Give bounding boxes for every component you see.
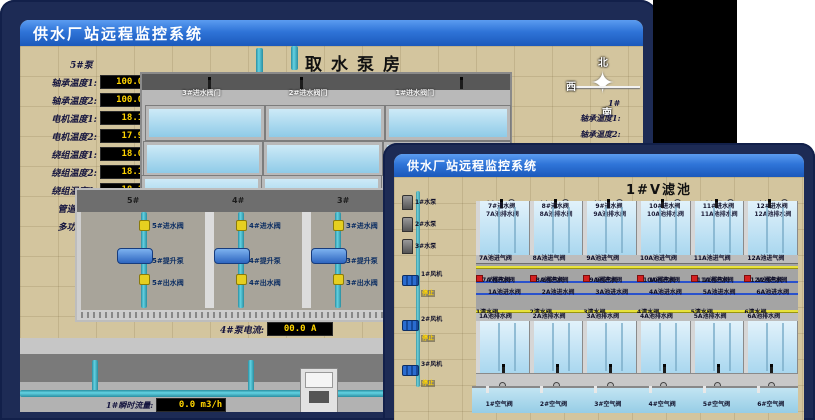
bottom-channel: 1#空气阀 2#空气阀 3#空气阀 4#空气阀 5#空气阀 6#空气阀 [472, 386, 798, 413]
cell-air-in-label: 10A池进气阀 [637, 255, 691, 263]
readout-label: 电机温度2: [51, 130, 97, 143]
top-airin-row: 7A池进气阀8A池进气阀9A池进气阀10A池进气阀11A池进气阀12A池进气阀 [476, 255, 798, 263]
back-window-titlebar[interactable]: 供水厂站远程监控系统 [20, 20, 643, 46]
cell-pool-inlet-label[interactable]: 6A池进水阀 [744, 289, 798, 299]
cell-lane-divider [659, 207, 661, 253]
bay-inlet-valve-label: 4#进水阀 [249, 221, 281, 231]
front-window: 供水厂站远程监控系统 1#V滤池 1#水泵 2#水泵 3#水泵 [394, 154, 804, 420]
cell-air-in-label: 11A池进气阀 [691, 255, 745, 263]
cell-pool-inlet-label[interactable]: 1A池进水阀 [476, 289, 530, 299]
cell-pool-inlet-label[interactable]: 12A池进水阀 [744, 277, 798, 287]
blower-status: 停止 [421, 335, 435, 342]
cell-inlet-label: 8#进水阀 [542, 203, 569, 210]
inlet-valve-icon[interactable] [333, 220, 344, 231]
readout-label: 绕组温度2: [51, 166, 97, 179]
cell-lane-divider [659, 323, 661, 371]
cell-lane-divider [729, 207, 731, 253]
readout-row: 绕组温度2: 18.1°C [26, 165, 158, 179]
left-equipment: 1#水泵 2#水泵 3#水泵 1#风机 停止 [402, 195, 474, 396]
walkway: 7排气阀 8排气阀 9排气阀 10排气阀 11排气阀 12排气阀 [476, 263, 798, 315]
ammeter-left: 4#泵电流: 00.0 A [220, 322, 333, 336]
cell-lane-divider [514, 323, 516, 371]
compass-north: 北 [598, 54, 608, 69]
filter-cell-top[interactable]: 12#进水阀 12A池排水阀 [744, 201, 798, 255]
front-window-title: 供水厂站远程监控系统 [407, 157, 537, 174]
cell-lane-divider [552, 207, 554, 253]
cell-pool-inlet-label[interactable]: 10A池进水阀 [637, 277, 691, 287]
cell-lane-divider [782, 323, 784, 371]
cell-lane-divider [766, 323, 768, 371]
gate-valve-label: 3#进水阀门 [182, 88, 289, 98]
channel-air-valve[interactable]: 3#空气阀 [581, 388, 635, 413]
blower[interactable]: 3#风机 停止 [402, 351, 474, 389]
inlet-valve-icon[interactable] [139, 220, 150, 231]
channel-air-label: 4#空气阀 [649, 401, 676, 408]
cell-exhaust[interactable]: 9排气阀 [583, 267, 637, 277]
cell-pool-inlet-label[interactable]: 2A池进水阀 [530, 289, 584, 299]
outlet-valve-icon[interactable] [333, 274, 344, 285]
bay-number: 4# [232, 196, 337, 205]
cell-air-in-label: 12A池进气阀 [744, 255, 798, 263]
channel-air-label: 1#空气阀 [486, 401, 513, 408]
ammeter-left-value[interactable]: 00.0 A [267, 322, 333, 336]
cell-drain-label: 12A池排水阀 [754, 211, 791, 218]
cell-inlet-valve-icon [609, 364, 612, 373]
cell-pool-inlet-label[interactable]: 5A池进水阀 [691, 289, 745, 299]
lift-pump-icon[interactable] [214, 248, 250, 264]
cell-inlet-valve-icon [663, 364, 666, 373]
cell-pool-inlet-label[interactable]: 3A池进水阀 [583, 289, 637, 299]
bottom-drain-row: 1A池排水阀2A池排水阀3A池排水阀4A池排水阀5A池排水阀6A池排水阀 [476, 313, 798, 321]
outlet-valve-icon[interactable] [139, 274, 150, 285]
cell-lane-divider [514, 207, 516, 253]
cell-lane-divider [568, 207, 570, 253]
back-window-title: 供水厂站远程监控系统 [33, 23, 203, 44]
partial-readout-label: 轴承温度2: [580, 129, 643, 140]
tank-cell [146, 106, 264, 140]
walkway-top-labels: 7排气阀 8排气阀 9排气阀 10排气阀 11排气阀 12排气阀 [476, 267, 798, 277]
filter-scene: 1#V滤池 1#水泵 2#水泵 3#水泵 [394, 177, 804, 420]
channel-air-valve[interactable]: 5#空气阀 [689, 388, 743, 413]
pump5-label: 5#泵 [70, 58, 158, 71]
tank-cell [386, 106, 510, 140]
channel-air-label: 5#空气阀 [703, 401, 730, 408]
bay-pump-label: 4#提升泵 [249, 256, 281, 266]
blower-status: 停止 [421, 290, 435, 297]
cell-lane-divider [498, 323, 500, 371]
readout-row: 电机温度2: 17.9°C [26, 129, 158, 143]
filter-cell-top[interactable]: 7#进水阀 7A池排水阀 [476, 201, 530, 255]
compass-bar [568, 86, 640, 88]
bay-pump-label: 3#提升泵 [346, 256, 378, 266]
bay-pump-label: 5#提升泵 [152, 256, 184, 266]
cell-exhaust[interactable]: 11排气阀 [691, 267, 745, 277]
ammeter-left-label: 4#泵电流: [220, 323, 264, 336]
pump-icon [402, 217, 413, 232]
channel-air-valve[interactable]: 1#空气阀 [472, 388, 526, 413]
cell-pool-inlet-label[interactable]: 4A池进水阀 [637, 289, 691, 299]
cell-drain-label: 5A池排水阀 [691, 313, 745, 321]
cell-lane-divider [605, 323, 607, 371]
pump-bay: 4#进水阀 4#提升泵 4#出水阀 [214, 212, 311, 308]
gallery-branch-pipe [92, 360, 98, 392]
cell-lane-divider [568, 323, 570, 371]
bay-outlet-valve-label: 3#出水阀 [346, 278, 378, 288]
cell-inlet-label: 9#进水阀 [595, 203, 622, 210]
readout-label: 绕组温度1: [51, 148, 97, 161]
pump-icon [402, 239, 413, 254]
blower-label: 1#风机 [421, 271, 442, 278]
gate-valve-label: 1#进水阀门 [395, 88, 502, 98]
blower[interactable]: 2#风机 停止 [402, 306, 474, 344]
readout-label: 轴承温度2: [51, 94, 97, 107]
cell-inlet-valve-icon [717, 364, 720, 373]
walkway-top-inlet-labels: 7A池进水阀8A池进水阀9A池进水阀10A池进水阀11A池进水阀12A池进水阀 [476, 277, 798, 287]
cell-lane-divider [713, 323, 715, 371]
cell-exhaust[interactable]: 10排气阀 [637, 267, 691, 277]
pump1-readout-partial: 1# 轴承温度1:轴承温度2: [580, 98, 643, 140]
gallery-branch-pipe [248, 360, 254, 392]
filter-cell-bottom[interactable] [691, 321, 745, 373]
bay-inlet-valve-label: 5#进水阀 [152, 221, 184, 231]
cell-pool-inlet-label[interactable]: 9A池进水阀 [583, 277, 637, 287]
filter-cell-top[interactable]: 8#进水阀 8A池排水阀 [530, 201, 584, 255]
bay-outlet-valve-label: 4#出水阀 [249, 278, 281, 288]
readout-label: 电机温度1: [51, 112, 97, 125]
cell-lane-divider [621, 323, 623, 371]
cell-pool-inlet-label[interactable]: 7A池进水阀 [476, 277, 530, 287]
blower-icon [402, 275, 419, 286]
riser-pipe [291, 46, 298, 70]
filter-cell-top[interactable]: 11#进水阀 11A池排水阀 [691, 201, 745, 255]
tank-cell [144, 142, 262, 176]
readout-row: 绕组温度1: 18.0°C [26, 147, 158, 161]
readout-label: 轴承温度1: [51, 76, 97, 89]
gate-valve-label: 2#进水阀门 [289, 88, 396, 98]
cell-air-in-label: 8A池进气阀 [530, 255, 584, 263]
pump-icon [402, 195, 413, 210]
riser-pipe [256, 48, 263, 74]
flow-valve-box[interactable] [300, 368, 338, 412]
cell-exhaust[interactable]: 7排气阀 [476, 267, 530, 277]
cell-pool-inlet-label[interactable]: 11A池进水阀 [691, 277, 745, 287]
top-cells-row: 7#进水阀 7A池排水阀 8#进水阀 8A池排水阀 9#进水阀 9A池排水阀 1… [476, 201, 798, 255]
filter-pump[interactable]: 1#水泵 [402, 195, 474, 210]
pump1-label: 1# [608, 98, 643, 108]
flow-left-label: 1#瞬时流量: [106, 400, 153, 411]
cell-lane-divider [782, 207, 784, 253]
cell-drain-label: 10A池排水阀 [647, 211, 684, 218]
filter-cell-bottom[interactable] [530, 321, 584, 373]
lift-pump-icon[interactable] [117, 248, 153, 264]
inlet-valve-icon[interactable] [236, 220, 247, 231]
black-background-panel [653, 0, 737, 143]
bottom-cells-row [476, 321, 798, 373]
pump-label: 3#水泵 [415, 243, 436, 250]
partial-readout-label: 轴承温度1: [580, 113, 643, 124]
cell-drain-label: 3A池排水阀 [583, 313, 637, 321]
channel-air-valve[interactable]: 4#空气阀 [635, 388, 689, 413]
cell-drain-label: 6A池排水阀 [744, 313, 798, 321]
cell-drain-label: 2A池排水阀 [530, 313, 584, 321]
pump-label: 1#水泵 [415, 199, 436, 206]
cell-lane-divider [621, 207, 623, 253]
cell-lane-divider [675, 323, 677, 371]
cell-lane-divider [552, 323, 554, 371]
cell-lane-divider [675, 207, 677, 253]
blower-label: 2#风机 [421, 316, 442, 323]
filter-cell-top[interactable]: 10#进水阀 10A池排水阀 [637, 201, 691, 255]
pump-bay: 5#进水阀 5#提升泵 5#出水阀 [117, 212, 214, 308]
cell-exhaust[interactable]: 12排气阀 [744, 267, 798, 277]
readout-row: 轴承温度1: 100.0°C [26, 75, 158, 89]
bottom-inlet-row: 1进水阀 2进水阀 3进水阀 4进水阀 5进水阀 6进水阀 [476, 373, 798, 387]
readout-row: 电机温度1: 18.1°C [26, 111, 158, 125]
cell-inlet-valve-icon [770, 364, 773, 373]
flow-left-value[interactable]: 0.0 m3/h [156, 398, 226, 412]
cell-lane-divider [713, 207, 715, 253]
cell-drain-label: 11A池排水阀 [701, 211, 738, 218]
flow-left: 1#瞬时流量: 0.0 m3/h [106, 398, 226, 412]
lift-pump-icon[interactable] [311, 248, 347, 264]
filter-cell-top[interactable]: 9#进水阀 9A池排水阀 [583, 201, 637, 255]
channel-air-label: 2#空气阀 [540, 401, 567, 408]
walkway-bottom-inlet-labels: 1A池进水阀2A池进水阀3A池进水阀4A池进水阀5A池进水阀6A池进水阀 [476, 289, 798, 299]
blowers: 1#风机 停止 2#风机 停止 3#风机 停止 [402, 261, 474, 389]
filter-cell-bottom[interactable] [476, 321, 530, 373]
cell-lane-divider [766, 207, 768, 253]
filter-cell-bottom[interactable] [583, 321, 637, 373]
cell-pool-inlet-label[interactable]: 8A池进水阀 [530, 277, 584, 287]
bay-inlet-valve-label: 3#进水阀 [346, 221, 378, 231]
compass-star-icon: ✦ [590, 66, 615, 101]
filter-cell-bottom[interactable] [744, 321, 798, 373]
cell-air-in-label: 9A池进气阀 [583, 255, 637, 263]
outlet-valve-icon[interactable] [236, 274, 247, 285]
bay-outlet-valve-label: 5#出水阀 [152, 278, 184, 288]
readout-row: 轴承温度2: 100.0°C [26, 93, 158, 107]
cell-inlet-label: 7#进水阀 [488, 203, 515, 210]
pump-label: 2#水泵 [415, 221, 436, 228]
filter-pump[interactable]: 3#水泵 [402, 239, 474, 254]
compass-west: 西 [566, 78, 576, 93]
bay-number: 5# [127, 196, 232, 205]
channel-air-valve[interactable]: 2#空气阀 [526, 388, 580, 413]
cell-inlet-valve-icon [556, 364, 559, 373]
blower[interactable]: 1#风机 停止 [402, 261, 474, 299]
blower-icon [402, 365, 419, 376]
gate-valve-labels: 3#进水阀门2#进水阀门1#进水阀门 [182, 88, 502, 98]
blower-label: 3#风机 [421, 361, 442, 368]
channel-air-label: 3#空气阀 [594, 401, 621, 408]
cell-air-in-label: 7A池进气阀 [476, 255, 530, 263]
cell-lane-divider [498, 207, 500, 253]
blower-status: 停止 [421, 380, 435, 387]
tank-cell [264, 142, 382, 176]
top-air-valve-row: 7#空气阀 8#空气阀 9#空气阀 10#空气阀 11#空气阀 12#空气阀 [476, 191, 798, 201]
cell-inlet-valve-icon [502, 364, 505, 373]
tank-cell [266, 106, 384, 140]
blower-icon [402, 320, 419, 331]
channel-air-label: 6#空气阀 [757, 401, 784, 408]
cell-lane-divider [605, 207, 607, 253]
front-window-titlebar[interactable]: 供水厂站远程监控系统 [394, 154, 804, 177]
filter-pump[interactable]: 2#水泵 [402, 217, 474, 232]
cell-drain-label: 1A池排水阀 [476, 313, 530, 321]
filter-cell-bottom[interactable] [637, 321, 691, 373]
cell-lane-divider [729, 323, 731, 371]
partial-readout-list: 轴承温度1:轴承温度2: [580, 113, 643, 140]
channel-air-valve[interactable]: 6#空气阀 [744, 388, 798, 413]
filter-pumps: 1#水泵 2#水泵 3#水泵 [402, 195, 474, 254]
cell-drain-label: 4A池排水阀 [637, 313, 691, 321]
cell-exhaust[interactable]: 8排气阀 [530, 267, 584, 277]
